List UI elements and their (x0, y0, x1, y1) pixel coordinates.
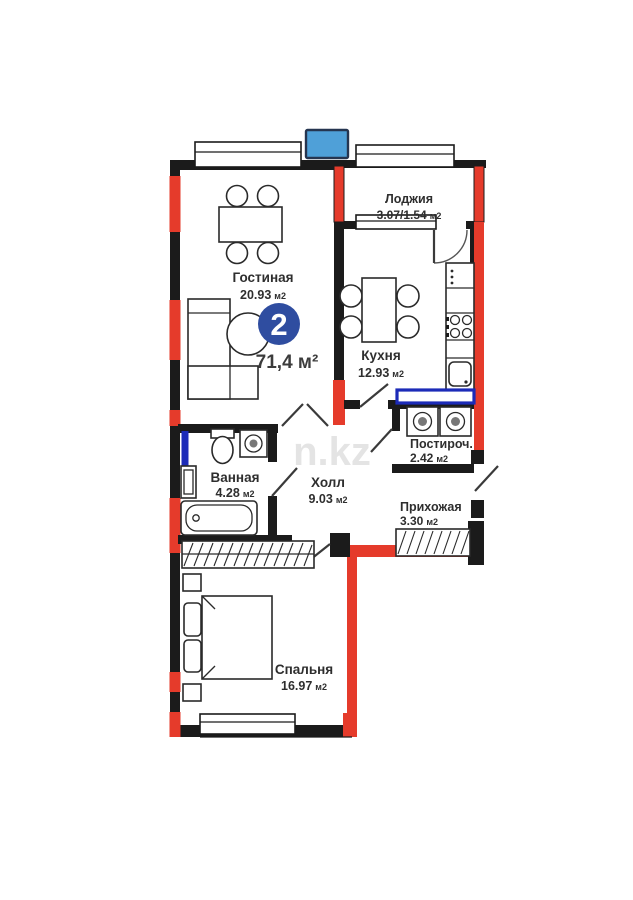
toilet-icon (211, 429, 234, 464)
wall (344, 400, 360, 409)
bearing-wall (333, 380, 345, 425)
living-door-leaf (307, 404, 328, 426)
bearing-wall (170, 672, 181, 692)
room-name: Кухня (361, 348, 400, 363)
room-label-hall: Холл 9.03м2 (308, 475, 347, 506)
entry-wardrobe (396, 529, 470, 556)
balcony-marker (306, 130, 348, 158)
window (200, 714, 295, 734)
room-name: Лоджия (385, 192, 433, 206)
bearing-wall (170, 176, 181, 232)
room-name: Спальня (275, 662, 333, 677)
pillow (184, 640, 201, 672)
nightstand (183, 574, 201, 591)
room-label-kitchen: Кухня 12.93м2 (358, 348, 404, 380)
svg-text:2.42м2: 2.42м2 (410, 451, 448, 465)
wall (330, 533, 350, 557)
watermark: n.kz (293, 430, 371, 474)
chair (397, 316, 419, 338)
room-name: Гостиная (232, 270, 293, 285)
sink-icon (181, 466, 196, 498)
washing-machine-icon (240, 430, 267, 457)
sink-icon (449, 362, 471, 386)
floor-plan-canvas: 2 71,4 м² (0, 0, 633, 900)
svg-text:4.28м2: 4.28м2 (215, 486, 254, 500)
living-door-leaf (282, 404, 303, 426)
kitchen-table (340, 278, 419, 342)
fridge-icon (451, 270, 454, 285)
room-label-living: Гостиная 20.93м2 (232, 270, 293, 302)
bearing-wall (343, 713, 357, 737)
chair (258, 243, 279, 264)
chair (397, 285, 419, 307)
total-area: 71,4 м² (256, 352, 319, 373)
dining-table (219, 186, 282, 264)
bearing-wall (474, 222, 484, 462)
room-name: Постироч. (410, 437, 473, 451)
window (195, 142, 301, 167)
kitchen-door-leaf (360, 384, 388, 407)
wall (471, 500, 484, 518)
laundry-door-leaf (371, 429, 392, 452)
room-label-loggia: Лоджия 3.07/1.54м2 (377, 192, 442, 222)
room-name: Прихожая (400, 500, 462, 514)
kitchen-counter (446, 263, 474, 390)
svg-text:3.07/1.54м2: 3.07/1.54м2 (377, 208, 442, 222)
chair (258, 186, 279, 207)
bearing-wall (170, 410, 181, 426)
chair (340, 285, 362, 307)
washing-machines (407, 407, 471, 436)
blue-partition (397, 390, 474, 403)
door-arc (434, 230, 467, 263)
svg-text:3.30м2: 3.30м2 (400, 514, 438, 528)
nightstand (183, 684, 201, 701)
wall (471, 450, 484, 464)
bearing-wall (474, 166, 484, 222)
entrance-door-leaf (475, 466, 498, 491)
wall (268, 424, 277, 462)
room-name: Холл (311, 475, 345, 490)
bearing-wall (347, 557, 357, 737)
bedroom-wardrobe (182, 541, 314, 568)
window (356, 145, 454, 167)
bed-frame (202, 596, 272, 679)
bathtub-icon (181, 501, 257, 535)
bearing-wall (170, 300, 181, 360)
bearing-wall (170, 712, 181, 737)
wall (392, 409, 400, 431)
wall (170, 160, 180, 737)
bearing-wall (334, 166, 344, 222)
room-label-bedroom: Спальня 16.97м2 (275, 662, 333, 693)
sofa-chaise (188, 366, 258, 399)
wall (466, 221, 474, 229)
bathroom-window (182, 431, 189, 471)
pillow (184, 603, 201, 636)
room-count-badge: 2 (258, 303, 300, 345)
badge-number: 2 (270, 307, 287, 342)
bearing-wall (170, 498, 181, 553)
table (219, 207, 282, 242)
bed (183, 574, 272, 701)
room-label-bathroom: Ванная 4.28м2 (211, 470, 260, 500)
room-label-laundry: Постироч. 2.42м2 (410, 437, 473, 465)
room-name: Ванная (211, 470, 260, 485)
floor-plan: 2 71,4 м² (0, 0, 633, 900)
wall (392, 464, 474, 473)
chair (340, 316, 362, 338)
svg-text:12.93м2: 12.93м2 (358, 366, 404, 380)
chair (227, 243, 248, 264)
table (362, 278, 396, 342)
chair (227, 186, 248, 207)
svg-text:20.93м2: 20.93м2 (240, 288, 286, 302)
room-label-entry: Прихожая 3.30м2 (400, 500, 462, 528)
svg-text:9.03м2: 9.03м2 (308, 492, 347, 506)
svg-text:16.97м2: 16.97м2 (281, 679, 327, 693)
